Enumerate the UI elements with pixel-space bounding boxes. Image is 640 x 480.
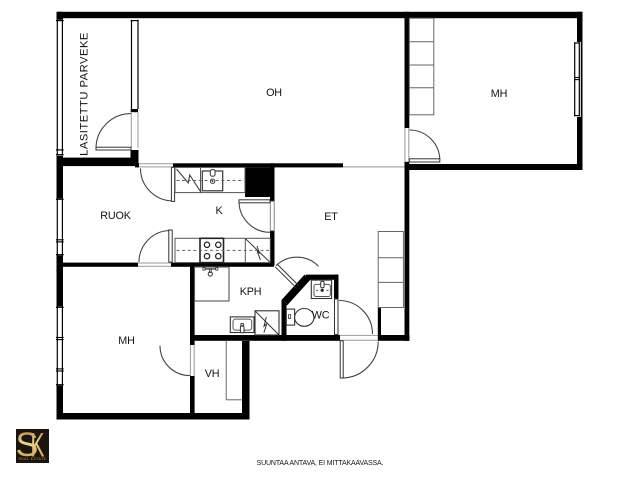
- svg-text:RUOK: RUOK: [100, 210, 131, 222]
- svg-text:VH: VH: [205, 368, 220, 380]
- svg-text:MH: MH: [491, 88, 507, 100]
- svg-text:MH: MH: [118, 335, 134, 347]
- svg-text:REAL ESTATE: REAL ESTATE: [19, 457, 47, 461]
- svg-text:LASITETTU PARVEKE: LASITETTU PARVEKE: [79, 32, 91, 156]
- svg-text:WC: WC: [312, 310, 330, 322]
- svg-text:ET: ET: [324, 211, 338, 223]
- svg-text:KPH: KPH: [240, 286, 262, 298]
- svg-text:OH: OH: [266, 87, 282, 99]
- svg-text:K: K: [215, 205, 223, 217]
- svg-text:SUUNTAA ANTAVA, EI MITTAKAAVAS: SUUNTAA ANTAVA, EI MITTAKAAVASSA.: [257, 460, 384, 467]
